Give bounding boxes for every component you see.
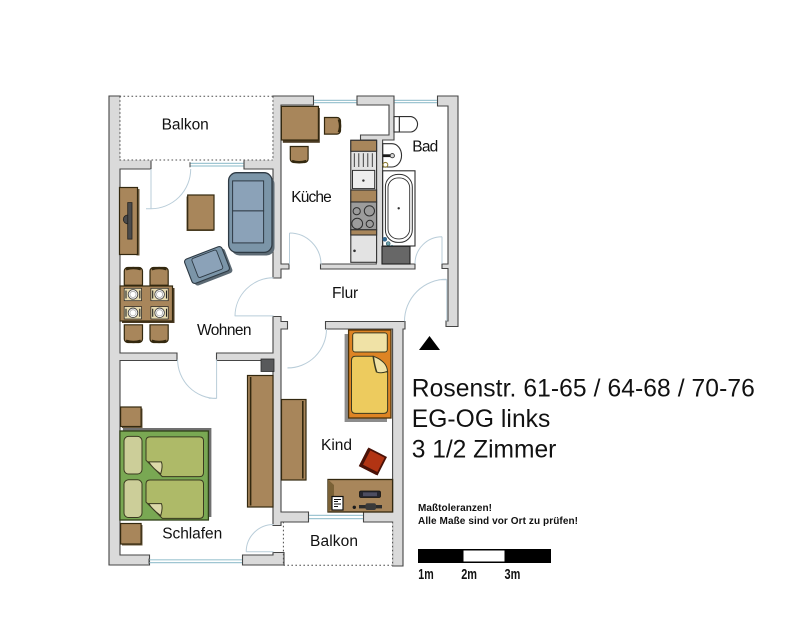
svg-text:Rosenstr. 61-65 / 64-68 / 70-7: Rosenstr. 61-65 / 64-68 / 70-76 — [412, 376, 755, 403]
svg-text:Maßtoleranzen!: Maßtoleranzen! — [418, 503, 492, 514]
svg-text:Küche: Küche — [291, 189, 332, 206]
svg-text:Schlafen: Schlafen — [162, 526, 222, 543]
svg-text:Alle Maße sind vor Ort zu prüf: Alle Maße sind vor Ort zu prüfen! — [418, 516, 578, 527]
svg-text:Kind: Kind — [321, 437, 352, 454]
svg-text:Balkon: Balkon — [162, 117, 209, 134]
svg-text:3 1/2 Zimmer: 3 1/2 Zimmer — [412, 437, 557, 464]
svg-text:3m: 3m — [505, 566, 521, 583]
svg-text:1m: 1m — [418, 566, 433, 583]
svg-text:Wohnen: Wohnen — [197, 322, 252, 339]
svg-text:Balkon: Balkon — [310, 533, 358, 550]
svg-text:EG-OG links: EG-OG links — [412, 406, 551, 433]
svg-text:2m: 2m — [461, 566, 477, 583]
svg-text:Flur: Flur — [332, 285, 358, 302]
svg-text:Bad: Bad — [412, 139, 438, 156]
